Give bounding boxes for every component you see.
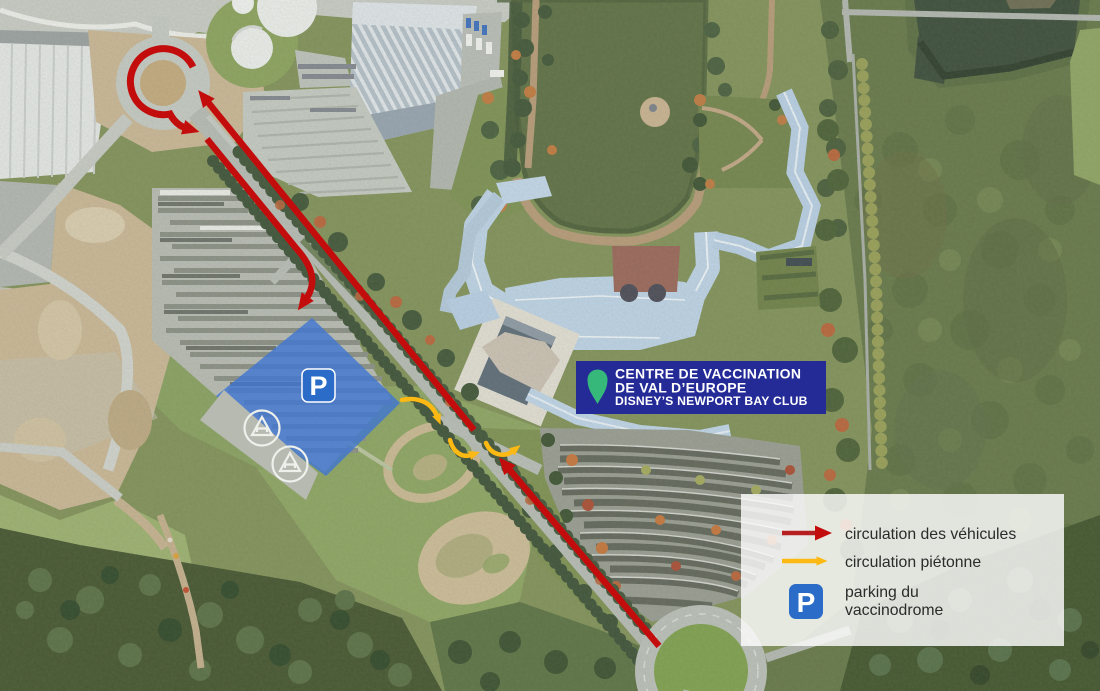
svg-text:vaccinodrome: vaccinodrome [845,602,944,619]
svg-text:parking du: parking du [845,584,919,601]
svg-text:P: P [309,371,327,401]
svg-text:P: P [797,587,816,618]
svg-text:DISNEY’S NEWPORT BAY CLUB: DISNEY’S NEWPORT BAY CLUB [615,394,808,408]
svg-text:circulation des véhicules: circulation des véhicules [845,526,1016,543]
svg-text:circulation piétonne: circulation piétonne [845,554,981,571]
